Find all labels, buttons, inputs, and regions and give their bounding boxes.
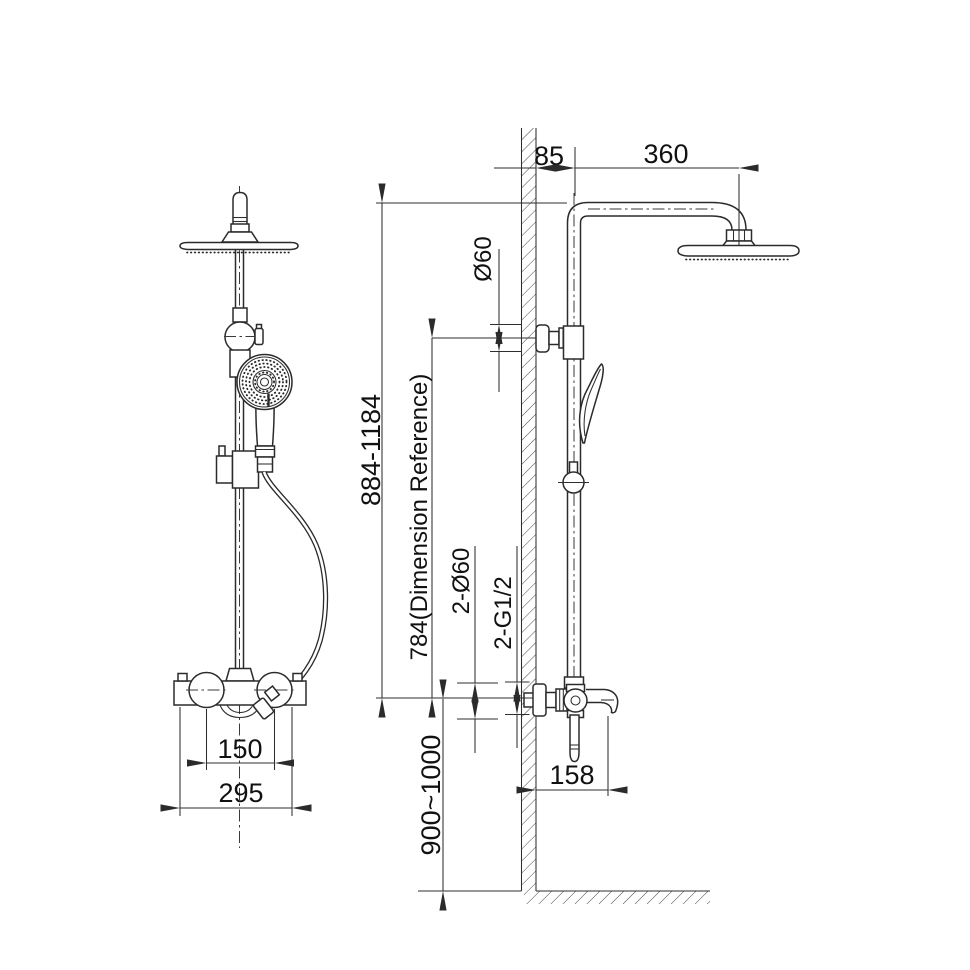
slider-bracket-front xyxy=(217,446,259,488)
riser-pipe-side xyxy=(568,193,581,692)
valve-handle-side xyxy=(570,715,579,762)
dim-label-inlet-60: 2-Ø60 xyxy=(448,548,475,615)
dim-label-295: 295 xyxy=(218,778,263,808)
dim-bracket-60: Ø60 xyxy=(470,236,521,392)
overhead-head-connector-front xyxy=(222,193,258,243)
wall-bracket-side xyxy=(536,325,584,359)
shower-arm-side xyxy=(568,203,747,231)
mixer-valve-side xyxy=(524,677,618,762)
dim-label-158: 158 xyxy=(549,760,594,790)
dim-label-900-1000: 900~1000 xyxy=(416,735,446,856)
drawing-canvas: 150 295 85 360 884-1184 xyxy=(0,0,970,970)
hand-shower-side xyxy=(580,364,604,443)
spout-side xyxy=(586,690,618,713)
wall-section xyxy=(522,128,537,891)
slider-knob-side xyxy=(558,462,589,493)
dim-360: 360 xyxy=(575,139,739,245)
floor-section xyxy=(418,891,710,904)
dim-label-85: 85 xyxy=(534,141,564,171)
dim-label-inlet-thread: 2-G1/2 xyxy=(490,576,517,649)
technical-drawing-shower-system: 150 295 85 360 884-1184 xyxy=(0,0,970,970)
dim-label-360: 360 xyxy=(643,139,688,169)
dim-label-784: 784(Dimension Reference) xyxy=(406,374,433,661)
dim-label-150: 150 xyxy=(217,734,262,764)
dim-900-1000: 900~1000 xyxy=(416,699,446,891)
hand-shower-hose xyxy=(264,472,326,705)
dim-label-884-1184: 884-1184 xyxy=(356,394,386,506)
dim-label-bracket-60: Ø60 xyxy=(470,236,497,281)
front-view: 150 295 xyxy=(174,186,326,848)
